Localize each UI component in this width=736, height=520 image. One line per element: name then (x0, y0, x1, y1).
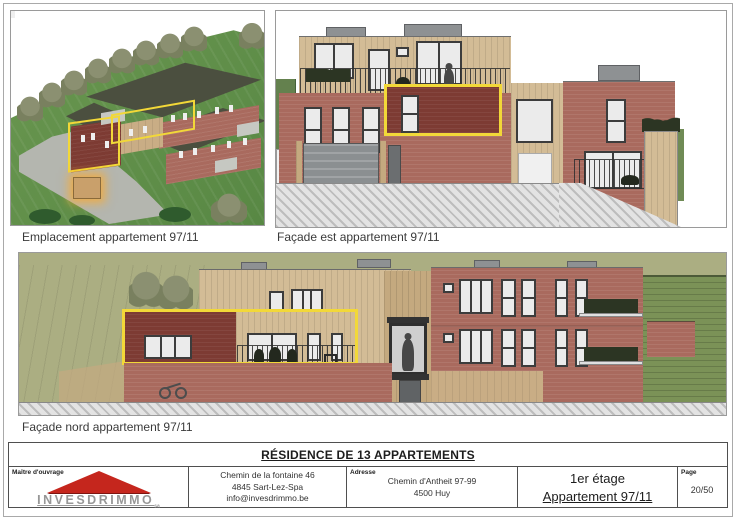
highlight-outline (122, 309, 358, 365)
tree (133, 39, 159, 69)
tree (181, 25, 207, 55)
entrance-structure (73, 177, 101, 199)
retaining-wall (647, 321, 695, 357)
balcony-plants (584, 347, 638, 361)
logo-wordmark: INVESDRIMMOsa (37, 492, 160, 510)
bush (69, 215, 95, 226)
bush (159, 207, 191, 222)
adresse-label: Adresse (350, 469, 376, 478)
tree (239, 21, 265, 53)
floor-line (431, 325, 643, 327)
window-specks (11, 11, 15, 18)
window (459, 329, 493, 364)
terrace-furniture (621, 175, 639, 185)
window (555, 279, 568, 317)
balcony-plants (306, 69, 350, 82)
tree (61, 69, 87, 99)
tree (85, 57, 111, 87)
balcony-slab (579, 361, 643, 365)
tree (211, 193, 247, 225)
tree (157, 32, 183, 62)
ground-hatch (19, 402, 726, 415)
tree (109, 47, 135, 77)
window (443, 333, 454, 343)
sheet-title: RÉSIDENCE DE 13 APPARTEMENTS (9, 443, 727, 467)
shrubs (129, 269, 163, 313)
adresse-line: Chemin d'Antheit 97-99 (388, 476, 477, 487)
logo-suffix: sa (154, 504, 160, 510)
maitre-ouvrage-cell: Maître d'ouvrage INVESDRIMMOsa (9, 467, 188, 508)
window (401, 95, 419, 133)
aerial-view-panel (10, 10, 265, 226)
invesdrimmo-logo: INVESDRIMMOsa (37, 471, 160, 510)
bush (29, 209, 61, 224)
logo-roof-icon (47, 471, 151, 493)
person-silhouette (402, 339, 414, 371)
entry-door (388, 145, 401, 184)
bicycle-icon (175, 387, 187, 399)
logo-text: INVESDRIMMO (37, 493, 154, 507)
title-block: RÉSIDENCE DE 13 APPARTEMENTS Maître d'ou… (8, 442, 728, 508)
caption-east-facade: Façade est appartement 97/11 (277, 230, 440, 244)
caption-north-facade: Façade nord appartement 97/11 (22, 420, 193, 434)
ground-hatch (276, 183, 566, 227)
window (501, 329, 516, 367)
garage-door (303, 143, 379, 184)
contact-line: info@invesdrimmo.be (226, 493, 308, 504)
apartment-label: Appartement 97/11 (543, 488, 653, 506)
window (606, 99, 626, 143)
contact-line: 4845 Sart-Lez-Spa (232, 482, 303, 493)
garage-jamb (380, 141, 386, 185)
site-address-cell: Adresse Chemin d'Antheit 97-99 4500 Huy (346, 467, 517, 508)
window (501, 279, 516, 317)
window (521, 279, 536, 317)
terrace-railing (574, 159, 652, 189)
window (396, 47, 409, 57)
roof-vent (598, 65, 640, 81)
title-block-row: Maître d'ouvrage INVESDRIMMOsa Chemin de… (9, 467, 727, 508)
garage-jamb (296, 141, 302, 185)
page-label: Page (681, 469, 697, 478)
contact-line: Chemin de la fontaine 46 (220, 470, 315, 481)
roof-vent (357, 259, 391, 268)
highlight-outline (68, 115, 120, 172)
page-number: 20/50 (691, 484, 714, 496)
plan-sheet: Emplacement appartement 97/11 Façade est… (0, 0, 736, 520)
owner-contact-cell: Chemin de la fontaine 46 4845 Sart-Lez-S… (188, 467, 346, 508)
window (555, 329, 568, 367)
balcony-plants (584, 299, 638, 313)
page-cell: Page 20/50 (677, 467, 726, 508)
window (516, 99, 553, 143)
east-facade-panel (275, 10, 727, 228)
north-facade-panel (18, 252, 727, 416)
balcony-slab (579, 313, 643, 317)
wood-screen (644, 131, 678, 227)
floor-label: 1er étage (570, 470, 625, 488)
window (521, 329, 536, 367)
sheet-subject-cell: 1er étage Appartement 97/11 (517, 467, 677, 508)
adresse-line: 4500 Huy (414, 488, 450, 499)
roof-terrace-plants (642, 117, 680, 132)
caption-location: Emplacement appartement 97/11 (22, 230, 199, 244)
window (443, 283, 454, 293)
window (459, 279, 493, 314)
